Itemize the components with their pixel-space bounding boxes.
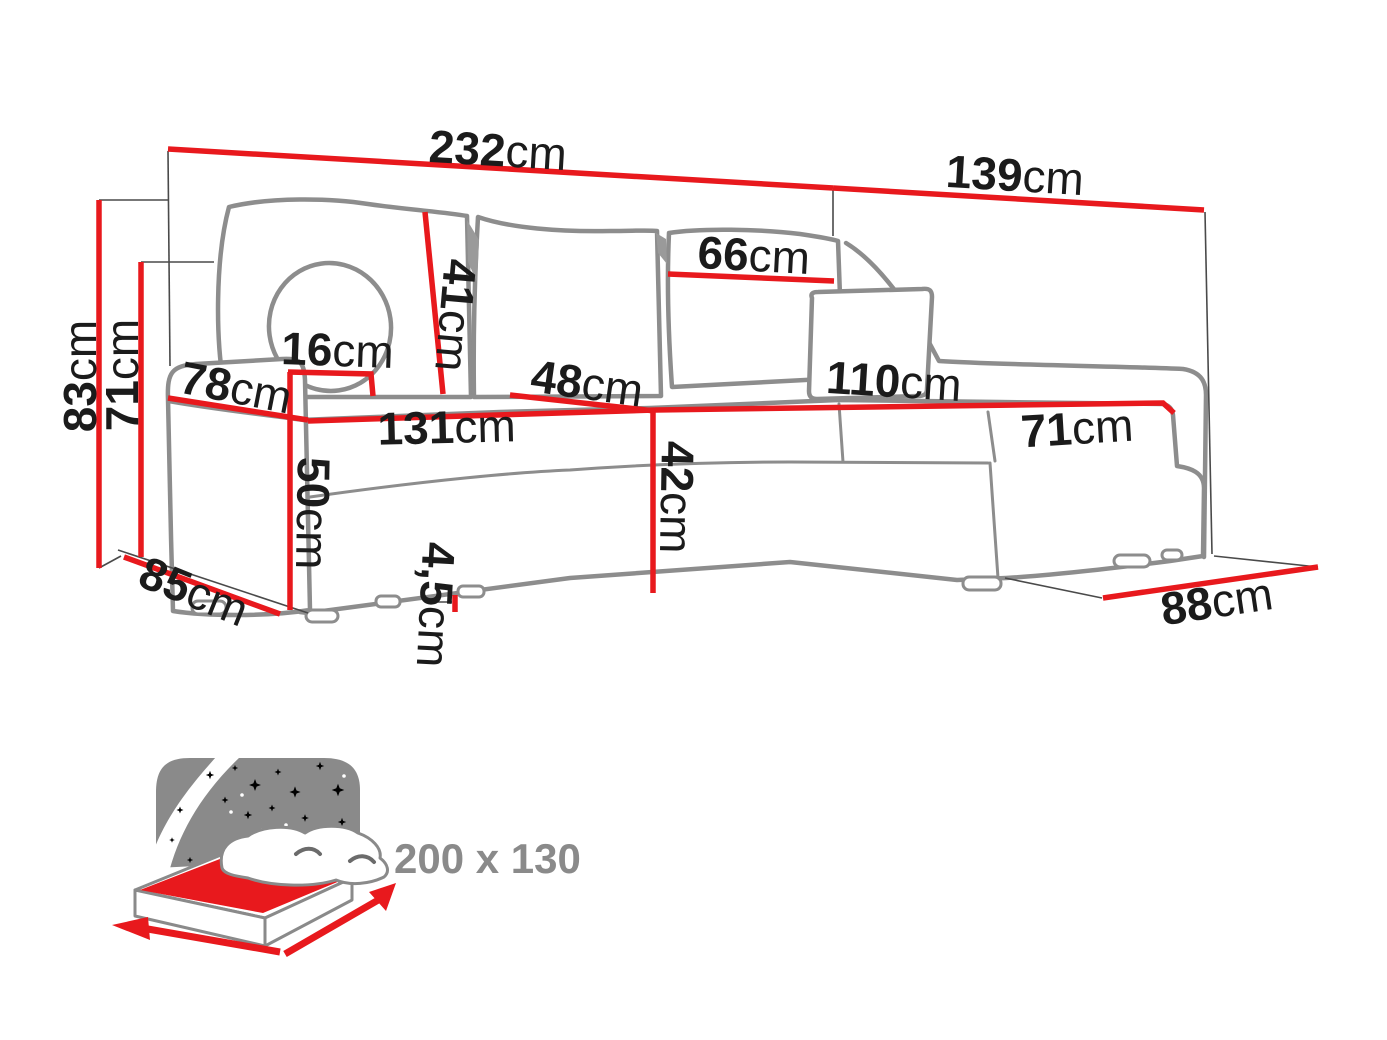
dim-seat-width-label: 131cm <box>377 399 516 455</box>
sofa-foot <box>963 577 1001 590</box>
sofa-foot <box>306 610 338 622</box>
sleeping-area-label: 200 x 130 <box>394 835 581 882</box>
sofa-foot <box>1114 555 1150 567</box>
sofa-foot <box>376 596 400 607</box>
sofa-foot <box>1162 550 1182 560</box>
dim-chaise-base-width-label: 88cm <box>1157 567 1276 635</box>
dim-leg-height-label: 4,5cm <box>407 541 465 669</box>
sofa-dimension-diagram: 232cm 139cm 66cm 41cm 83cm 71cm 78cm 16c… <box>0 0 1387 1040</box>
dim-total-width-label: 232cm <box>427 120 568 180</box>
sleeping-function-icon: 200 x 130 <box>112 757 581 954</box>
dim-seat-height-label: 42cm <box>650 441 704 554</box>
diagram-canvas: 232cm 139cm 66cm 41cm 83cm 71cm 78cm 16c… <box>0 0 1387 1040</box>
extension-line <box>99 556 121 568</box>
dim-side-depth-label: 139cm <box>944 145 1085 205</box>
floor-line-right-b <box>1214 556 1318 567</box>
dim-backrest-height-label: 71cm <box>96 319 148 432</box>
dim-back-cushion-width-label: 66cm <box>696 226 811 284</box>
floor-line-right-a <box>1005 578 1102 598</box>
extension-line <box>168 151 170 366</box>
dim-chaise-seat-width-label: 71cm <box>1019 399 1134 458</box>
dim-chaise-length-label: 110cm <box>825 351 963 411</box>
dim-back-cushion-height-label: 41cm <box>425 257 487 374</box>
dim-armrest-top-width-label: 16cm <box>280 322 394 378</box>
dim-armrest-height-label: 50cm <box>286 457 340 570</box>
